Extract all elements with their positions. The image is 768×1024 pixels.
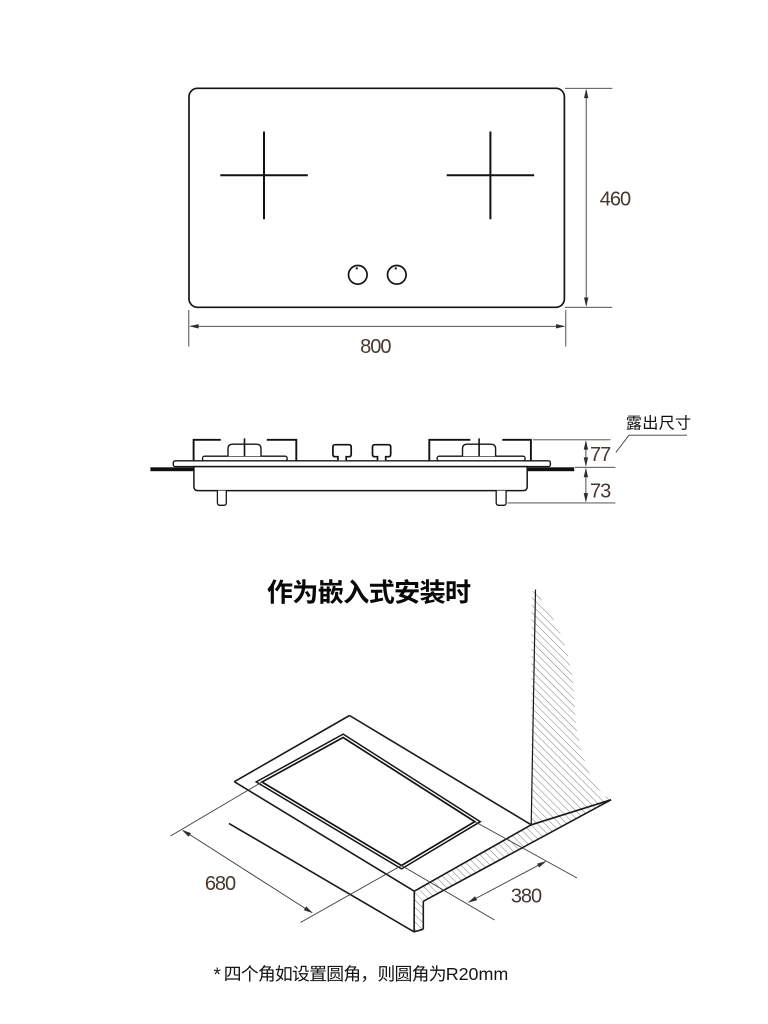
svg-text:*: * — [214, 965, 222, 986]
svg-text:380: 380 — [511, 886, 542, 908]
svg-text:73: 73 — [590, 480, 611, 502]
svg-text:680: 680 — [205, 873, 236, 895]
svg-text:R20mm: R20mm — [446, 964, 509, 984]
svg-text:460: 460 — [600, 189, 631, 211]
svg-text:77: 77 — [590, 444, 611, 466]
svg-text:800: 800 — [360, 336, 391, 358]
